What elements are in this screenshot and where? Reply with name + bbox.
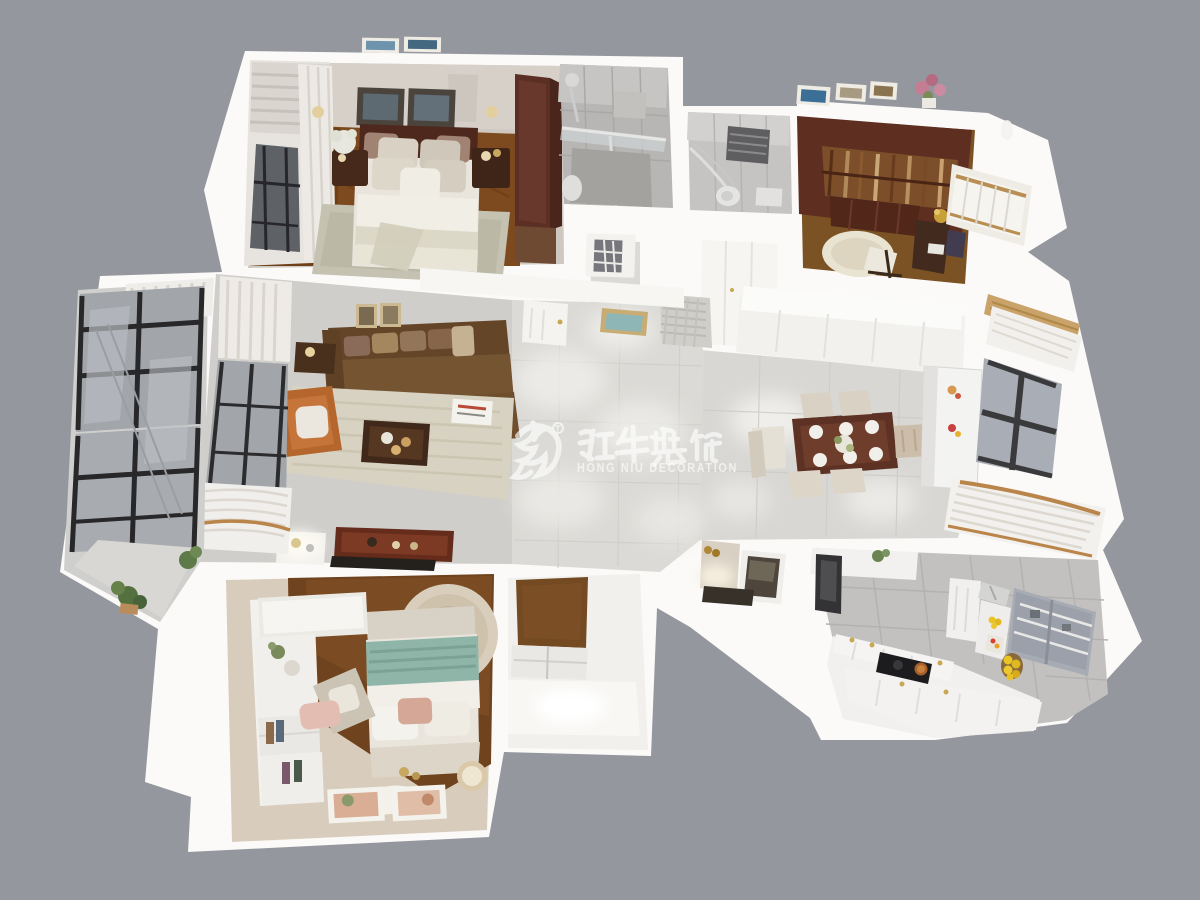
- svg-text:HONG NIU DECORATION: HONG NIU DECORATION: [577, 460, 738, 475]
